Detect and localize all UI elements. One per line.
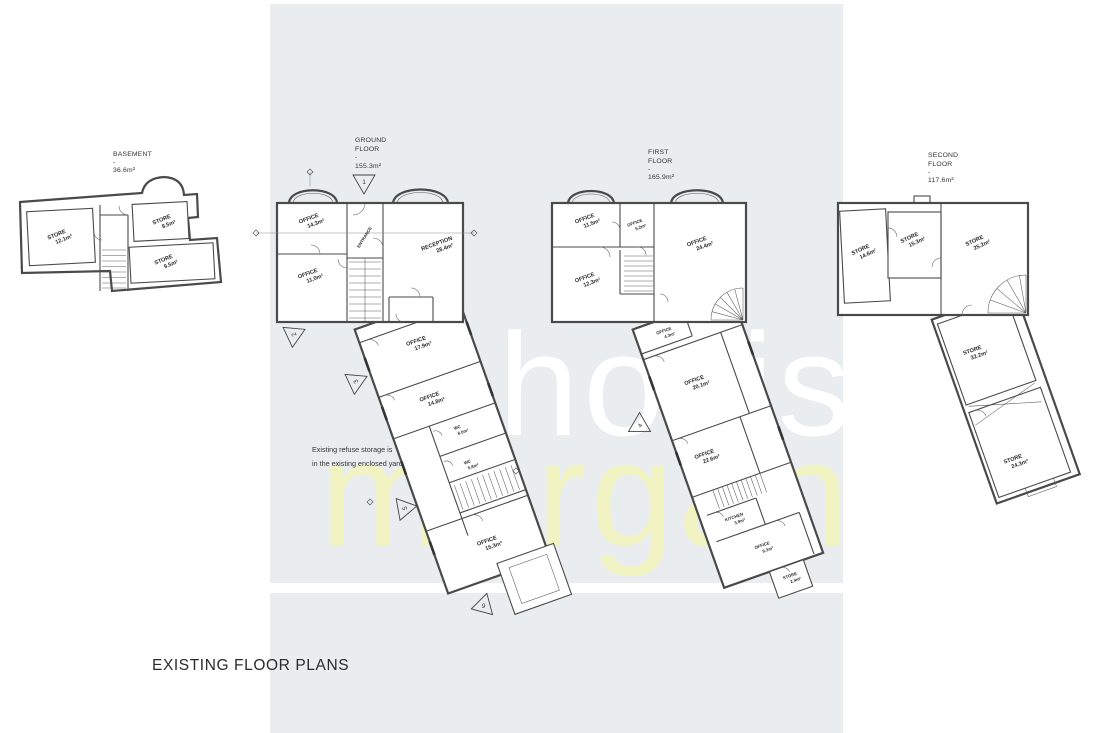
first-area: 165.9m² xyxy=(648,174,675,181)
view-marker-9: 9 xyxy=(471,591,497,615)
svg-text:-: - xyxy=(648,166,650,173)
second-title: SECOND xyxy=(928,152,958,159)
refuse-note-line2: in the existing enclosed yard xyxy=(312,459,403,468)
first-wing: OFFICE 4.3m² OFFICE 20.1m² OFFICE 22.6m²… xyxy=(633,294,833,614)
svg-text:-: - xyxy=(928,169,930,176)
floor-plan-sheet: hollis morgan BASEMENT - 36.6m² STORE 12… xyxy=(0,0,1100,733)
basement-plan: BASEMENT - 36.6m² STORE 12.1m² STORE 8.5… xyxy=(20,151,221,291)
basement-area: 36.6m² xyxy=(113,167,136,174)
first-floor-plan: FIRST FLOOR - 165.9m² OFFICE 4.3m² OFFIC… xyxy=(552,149,832,614)
svg-text:FLOOR: FLOOR xyxy=(928,161,952,168)
sheet-title: EXISTING FLOOR PLANS xyxy=(152,657,349,675)
svg-text:2: 2 xyxy=(290,331,298,338)
svg-text:-: - xyxy=(113,159,115,166)
view-marker-4: 4 xyxy=(629,412,656,441)
second-floor-plan: SECOND FLOOR - 117.6m² STORE 32.2m² STOR… xyxy=(838,152,1081,507)
svg-text:-: - xyxy=(355,154,357,161)
ground-area: 155.3m² xyxy=(355,163,382,170)
svg-text:3: 3 xyxy=(352,378,360,385)
refuse-note-line1: Existing refuse storage is xyxy=(312,445,393,454)
svg-text:9: 9 xyxy=(481,603,487,611)
view-marker-2: 2 xyxy=(283,319,310,347)
svg-text:1: 1 xyxy=(362,179,366,186)
svg-text:FLOOR: FLOOR xyxy=(355,146,379,153)
svg-text:4: 4 xyxy=(637,422,645,429)
svg-text:5: 5 xyxy=(402,505,410,510)
view-marker-3: 3 xyxy=(345,366,372,394)
ground-floor-plan: GROUND FLOOR - 155.3m² 1 OFFICE 17.9m² xyxy=(253,137,572,633)
bay-windows xyxy=(568,190,723,203)
second-wing: STORE 32.2m² STORE 24.3m² xyxy=(932,290,1081,507)
ground-title: GROUND xyxy=(355,137,386,144)
basement-title: BASEMENT xyxy=(113,151,152,158)
first-title: FIRST xyxy=(648,149,669,156)
svg-text:FLOOR: FLOOR xyxy=(648,158,672,165)
view-marker-1: 1 xyxy=(353,175,375,194)
bay-windows xyxy=(289,190,448,204)
second-area: 117.6m² xyxy=(928,177,954,184)
floor-plans-drawing: BASEMENT - 36.6m² STORE 12.1m² STORE 8.5… xyxy=(0,0,1100,733)
